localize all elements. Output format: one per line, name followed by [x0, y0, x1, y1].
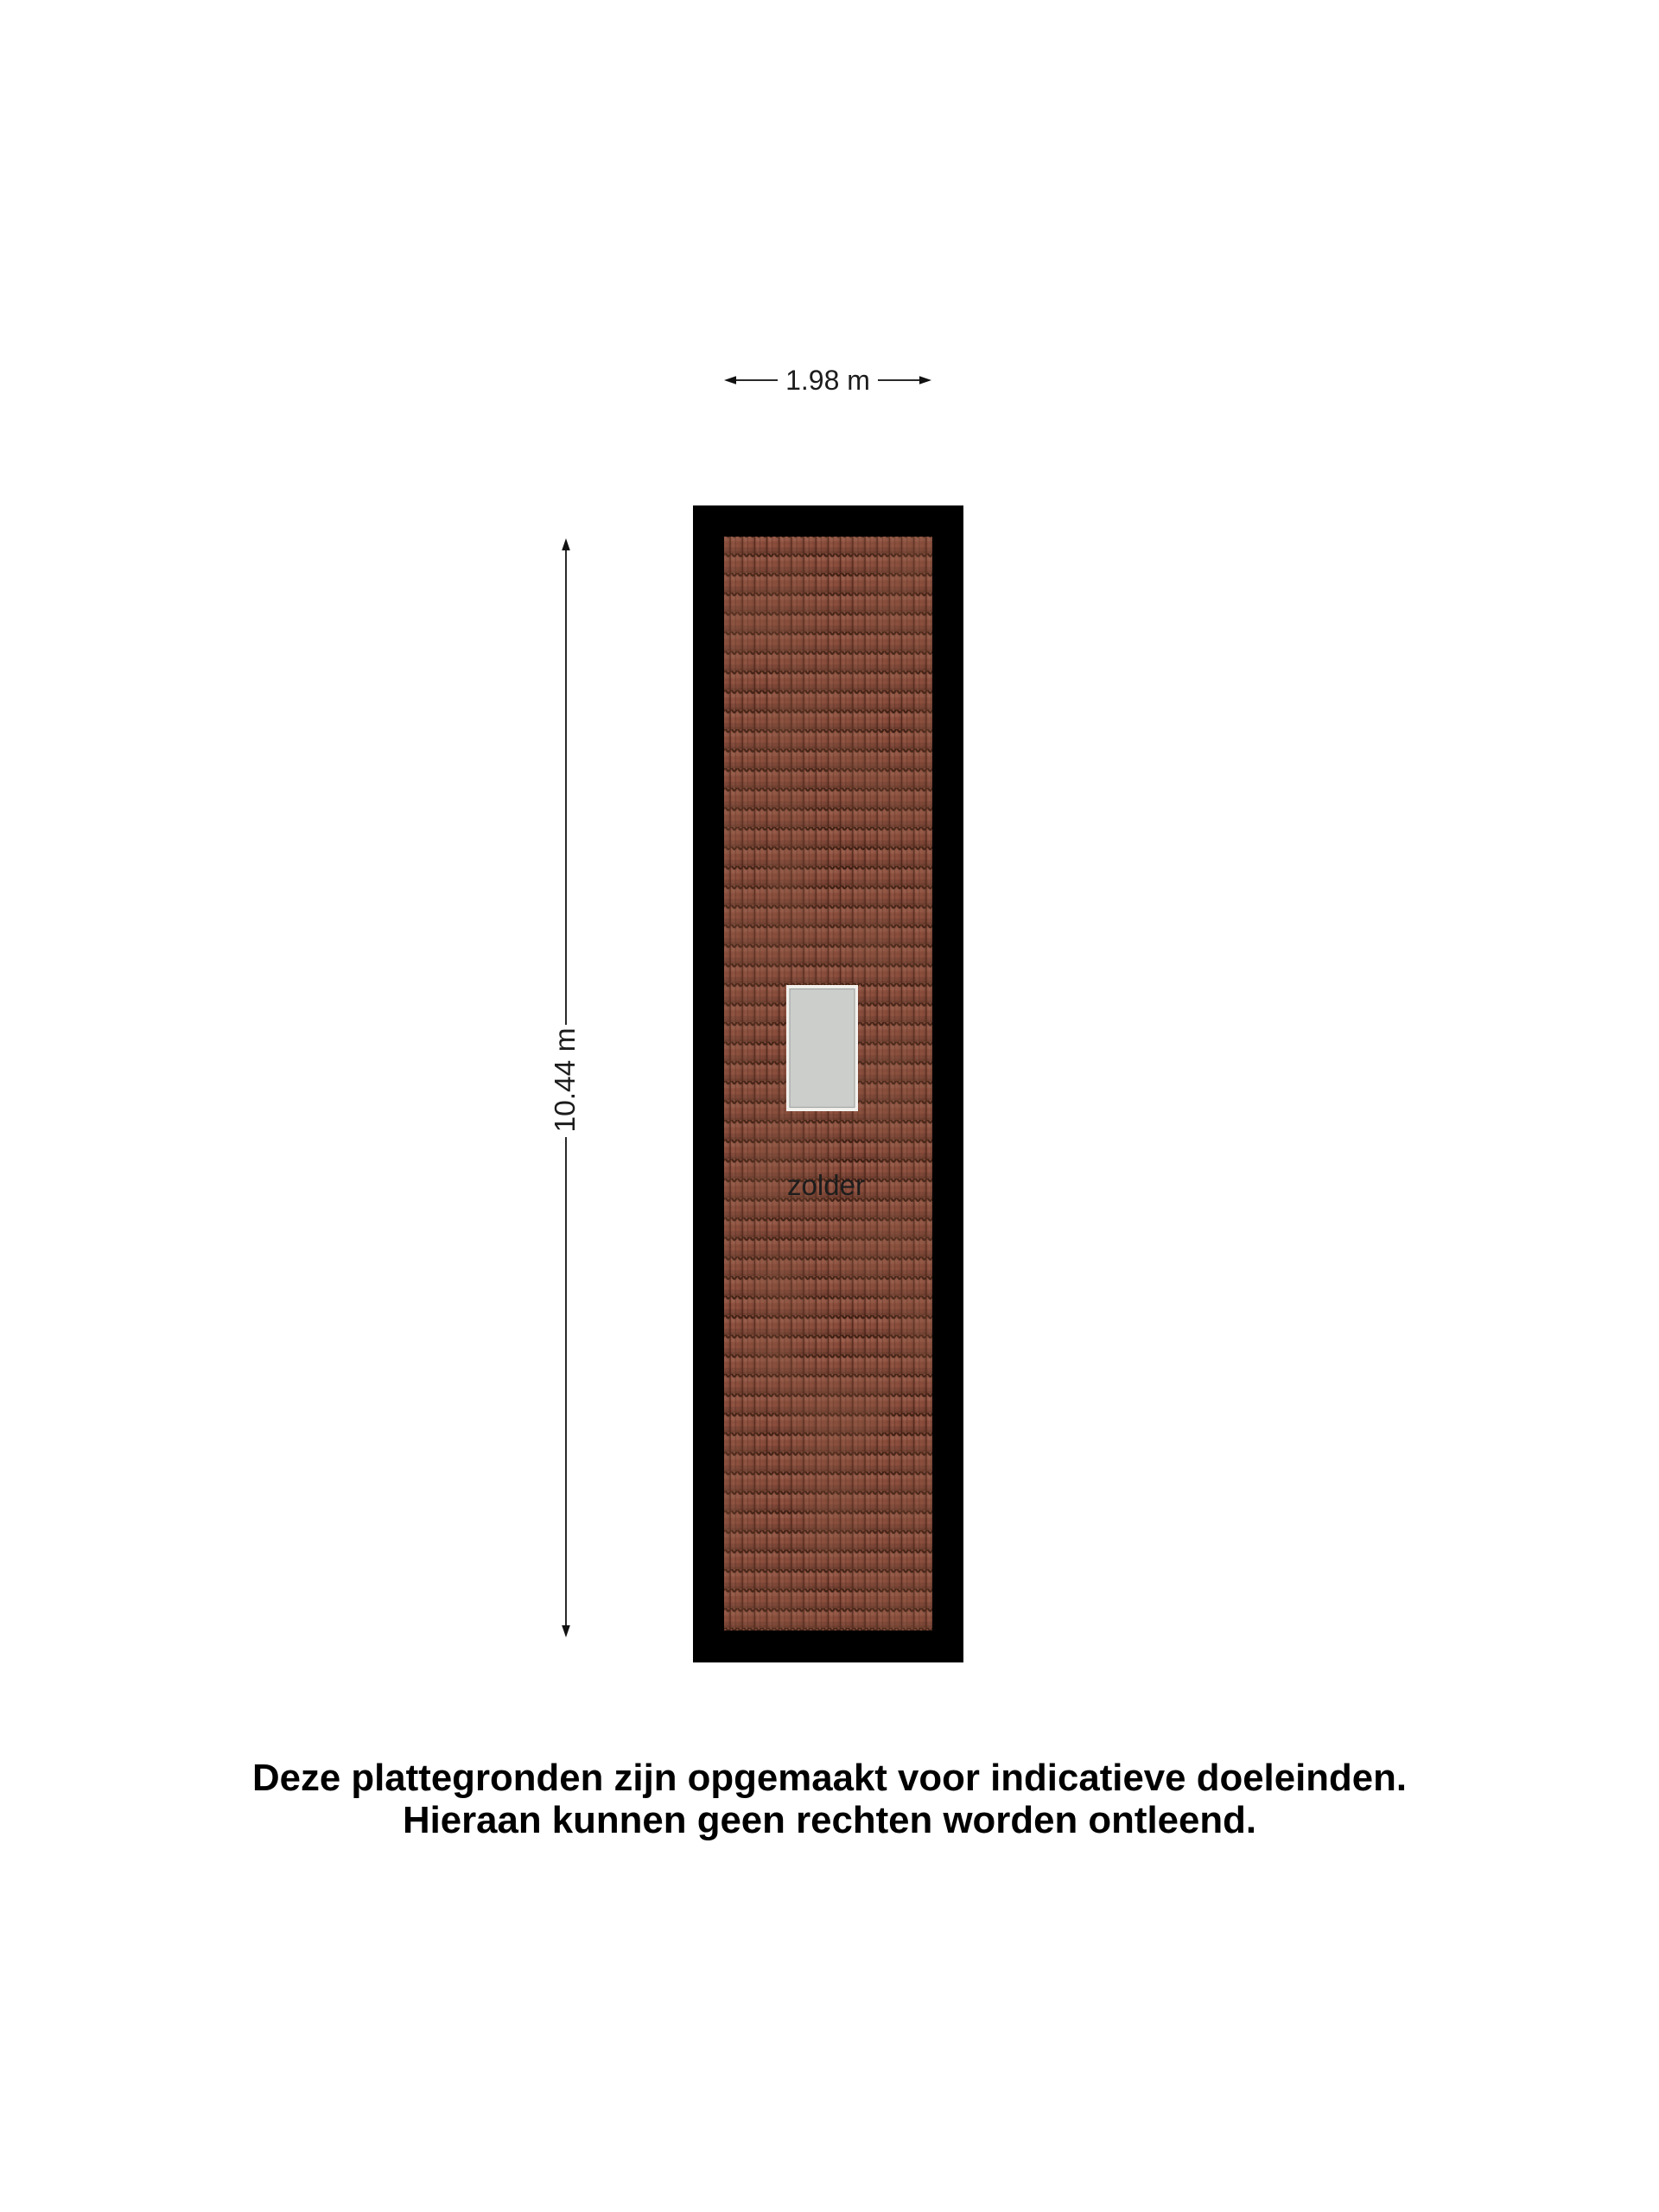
svg-text:zolder: zolder	[787, 1169, 865, 1201]
